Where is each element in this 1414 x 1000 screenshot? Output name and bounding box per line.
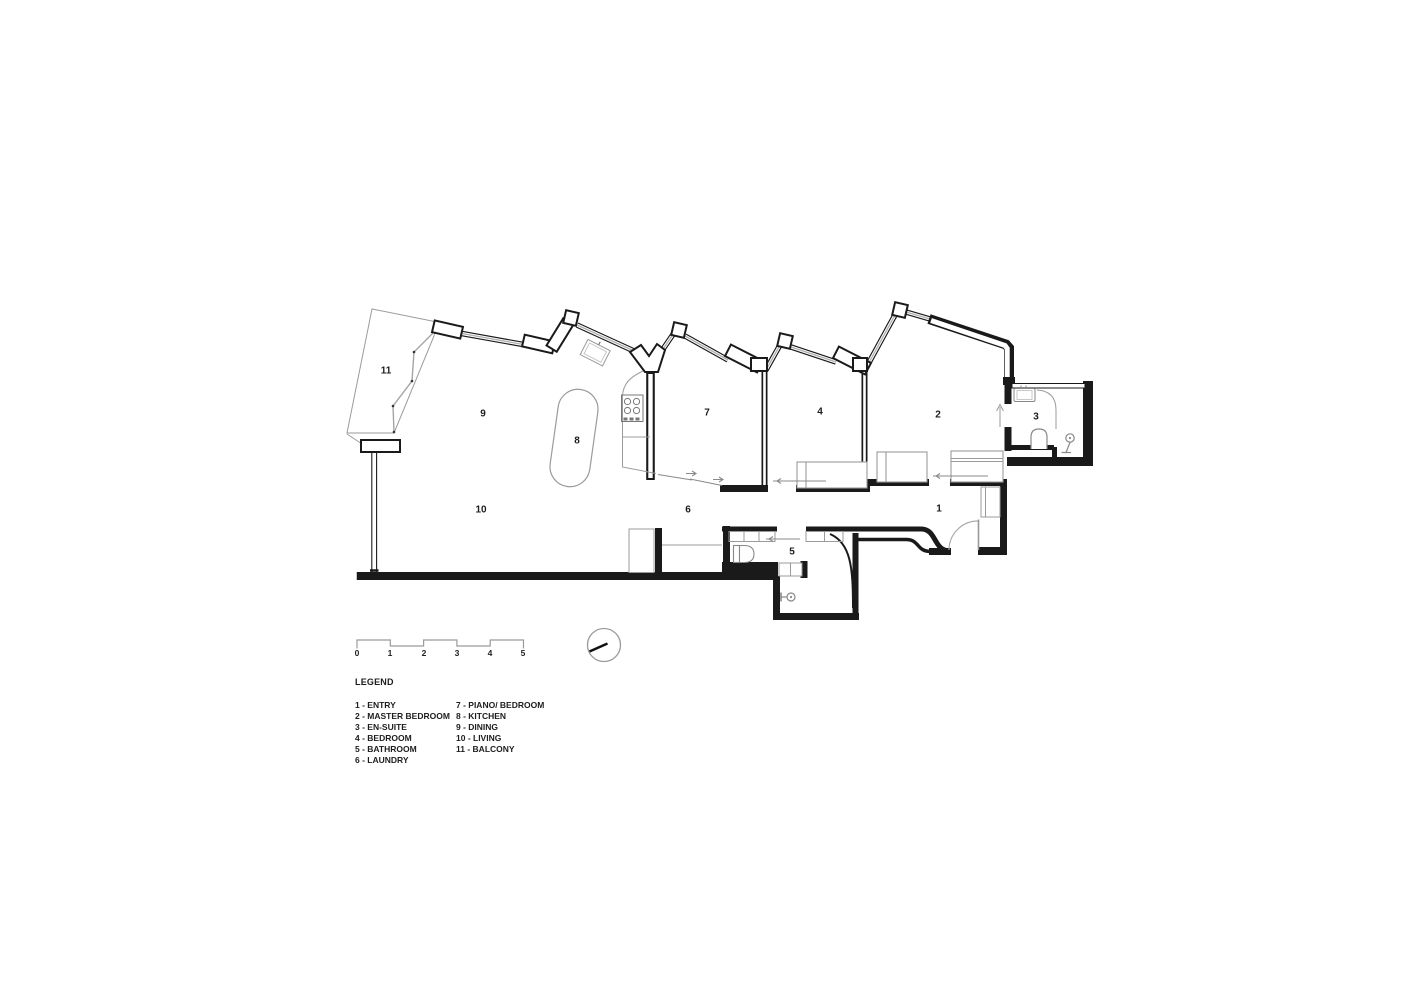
window-1a — [459, 333, 526, 345]
bathroom-vanities — [729, 532, 843, 542]
toilet-ensuite — [1031, 429, 1047, 449]
room-label-laundry: 6 — [685, 505, 691, 516]
legend-title: LEGEND — [355, 677, 615, 687]
legend-column-1: 1 - ENTRY 2 - MASTER BEDROOM 3 - EN-SUIT… — [355, 700, 456, 767]
window-4 — [685, 336, 728, 360]
room-label-entry: 1 — [936, 504, 942, 515]
room-label-living: 10 — [475, 505, 486, 516]
ensuite-door-arrow — [997, 405, 1004, 428]
window-8 — [906, 312, 930, 319]
room-label-kitchen: 8 — [574, 436, 580, 447]
room-label-master-bedroom: 2 — [935, 410, 941, 421]
room-label-balcony: 11 — [381, 366, 392, 377]
scale-tick-5: 5 — [521, 648, 526, 658]
legend-item: 6 - LAUNDRY — [355, 755, 456, 766]
scale-bar — [357, 640, 524, 649]
room-label-bathroom: 5 — [789, 547, 795, 558]
room-label-dining: 9 — [480, 409, 486, 420]
entry-closet — [981, 487, 1000, 517]
stove — [622, 395, 644, 422]
entry-door-swing — [949, 520, 979, 551]
legend-item: 4 - BEDROOM — [355, 733, 456, 744]
legend: LEGEND 1 - ENTRY 2 - MASTER BEDROOM 3 - … — [355, 677, 615, 767]
legend-item: 3 - EN-SUITE — [355, 722, 456, 733]
legend-item: 7 - PIANO/ BEDROOM — [456, 700, 544, 711]
room-label-bedroom: 4 — [817, 407, 823, 418]
scale-tick-4: 4 — [488, 648, 493, 658]
legend-item: 2 - MASTER BEDROOM — [355, 711, 456, 722]
legend-item: 9 - DINING — [456, 722, 544, 733]
balcony-outline — [347, 309, 437, 444]
scale-tick-0: 0 — [355, 648, 360, 658]
solid-walls — [357, 381, 1092, 620]
wall-piers — [361, 302, 908, 452]
window-7 — [866, 315, 895, 368]
floor-plan-page: 1 2 3 4 5 6 7 8 9 10 11 0 1 2 3 4 5 LEGE… — [0, 0, 1414, 1000]
room-label-piano-bedroom: 7 — [704, 408, 710, 419]
bed-room2 — [877, 452, 927, 482]
wardrobe-room2 — [951, 451, 1003, 482]
legend-column-2: 7 - PIANO/ BEDROOM 8 - KITCHEN 9 - DININ… — [456, 700, 544, 767]
room-label-en-suite: 3 — [1033, 412, 1039, 423]
legend-item: 10 - LIVING — [456, 733, 544, 744]
window-living-west — [370, 452, 379, 572]
shower-bench — [779, 563, 802, 576]
laundry-cabinets — [629, 529, 722, 573]
balcony-folding-door — [392, 331, 436, 434]
north-arrow — [588, 629, 621, 662]
toilet-bathroom — [734, 546, 755, 563]
scale-tick-3: 3 — [455, 648, 460, 658]
sliding-door-bathroom — [766, 537, 800, 542]
sliding-door-room7 — [658, 471, 723, 486]
legend-item: 11 - BALCONY — [456, 744, 544, 755]
legend-item: 5 - BATHROOM — [355, 744, 456, 755]
ensuite-counter — [1037, 390, 1056, 429]
balcony-threshold-wall — [361, 440, 400, 452]
window-6 — [791, 347, 836, 362]
floor-plan-drawing — [0, 0, 1414, 1000]
shower-head-bathroom — [781, 593, 795, 602]
bed-room4 — [797, 462, 867, 488]
scale-tick-2: 2 — [422, 648, 427, 658]
legend-item: 1 - ENTRY — [355, 700, 456, 711]
shower-head-ensuite — [1062, 434, 1075, 453]
legend-item: 8 - KITCHEN — [456, 711, 544, 722]
scale-tick-1: 1 — [388, 648, 393, 658]
curved-wall — [830, 534, 853, 608]
window-5 — [766, 345, 780, 370]
